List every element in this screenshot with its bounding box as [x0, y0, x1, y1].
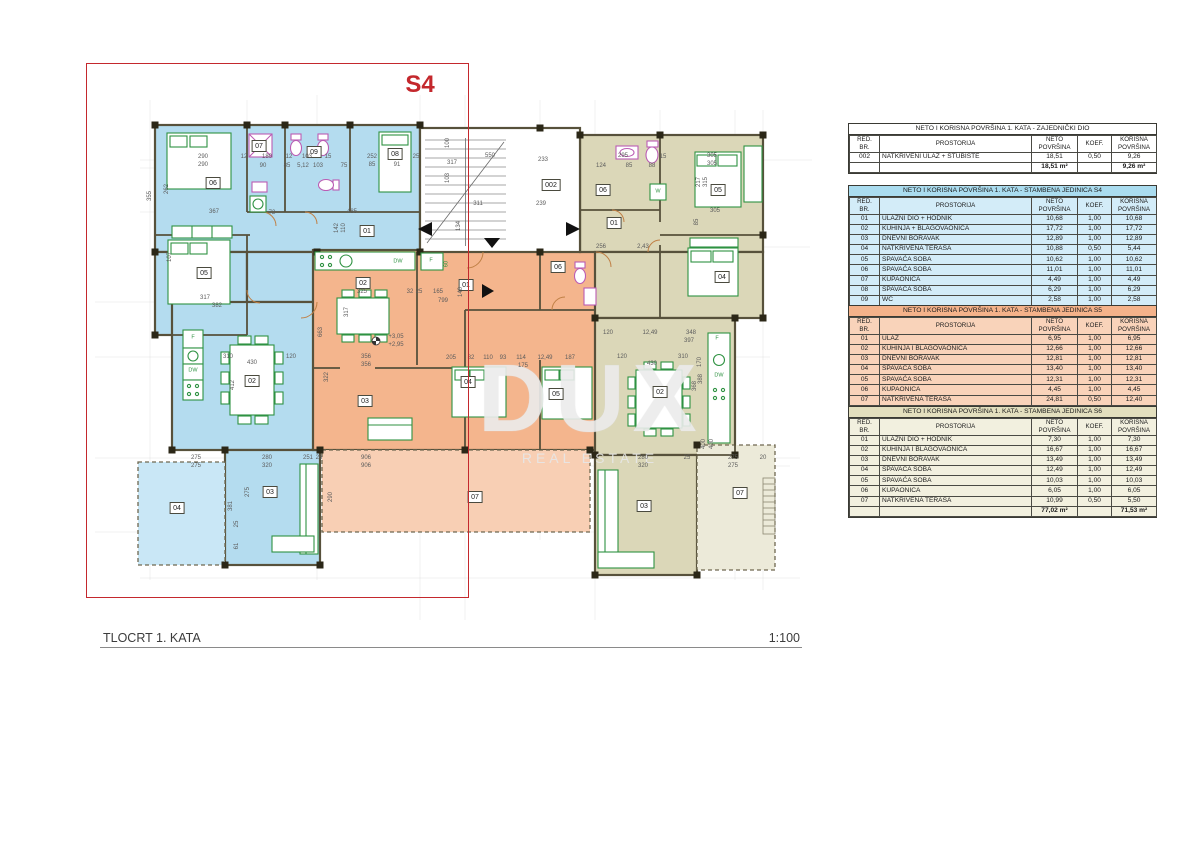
cell: 1,00: [1078, 285, 1112, 295]
table-row: 04SPAVAĆA SOBA13,401,0013,40: [850, 365, 1157, 375]
cell: 12,49: [1112, 466, 1157, 476]
cell: 9,26: [1112, 152, 1157, 162]
table-row: 03DNEVNI BORAVAK12,891,0012,89: [850, 234, 1157, 244]
column-header: PROSTORIJA: [880, 419, 1032, 436]
cell: 6,29: [1032, 285, 1078, 295]
area-table-s6: NETO I KORISNA POVRŠINA 1. KATA - STAMBE…: [848, 406, 1157, 518]
cell: 0,50: [1078, 496, 1112, 506]
cell: 1,00: [1078, 455, 1112, 465]
cell: 11,01: [1032, 265, 1078, 275]
cell: 13,40: [1112, 365, 1157, 375]
cell: 03: [850, 455, 880, 465]
cell: 10,68: [1112, 214, 1157, 224]
table-row: 06KUPAONICA6,051,006,05: [850, 486, 1157, 496]
cell: 07: [850, 496, 880, 506]
drawing-sheet: DUX REAL ESTATE 060709080501020304020106…: [0, 0, 1200, 848]
header-row: RED. BR.PROSTORIJANETO POVRŠINAKOEF.KORI…: [850, 198, 1157, 215]
cell: 0,50: [1078, 395, 1112, 405]
cell: 05: [850, 255, 880, 265]
table-row: 08SPAVAĆA SOBA6,291,006,29: [850, 285, 1157, 295]
area-table-common: NETO I KORISNA POVRŠINA 1. KATA - ZAJEDN…: [848, 123, 1157, 174]
cell: 12,81: [1032, 354, 1078, 364]
cell: 1,00: [1078, 445, 1112, 455]
cell: 002: [850, 152, 880, 162]
cell: 1,00: [1078, 476, 1112, 486]
column-header: KOEF.: [1078, 198, 1112, 215]
cell: 06: [850, 265, 880, 275]
area-table-grid: RED. BR.PROSTORIJANETO POVRŠINAKOEF.KORI…: [849, 135, 1157, 173]
table-row: 05SPAVAĆA SOBA10,621,0010,62: [850, 255, 1157, 265]
cell: ULAZ: [880, 334, 1032, 344]
table-row: 06KUPAONICA4,451,004,45: [850, 385, 1157, 395]
cell: 10,03: [1032, 476, 1078, 486]
cell: 24,81: [1032, 395, 1078, 405]
cell: 6,29: [1112, 285, 1157, 295]
table-row: 002NATKRIVENI ULAZ + STUBIŠTE18,510,509,…: [850, 152, 1157, 162]
table-row: 03DNEVNI BORAVAK12,811,0012,81: [850, 354, 1157, 364]
cell: 13,49: [1112, 455, 1157, 465]
total-row: 77,02 m²71,53 m²: [850, 506, 1157, 516]
column-header: NETO POVRŠINA: [1032, 419, 1078, 436]
column-header: PROSTORIJA: [880, 318, 1032, 335]
table-row: 07NATKRIVENA TERASA24,810,5012,40: [850, 395, 1157, 405]
cell: 02: [850, 445, 880, 455]
cell: 02: [850, 344, 880, 354]
cell: 10,68: [1032, 214, 1078, 224]
cell: 10,99: [1032, 496, 1078, 506]
column-header: KOEF.: [1078, 318, 1112, 335]
cell: 1,00: [1078, 466, 1112, 476]
cell: 12,89: [1112, 234, 1157, 244]
cell: 01: [850, 214, 880, 224]
cell: 4,45: [1032, 385, 1078, 395]
table-row: 07NATKRIVENA TERASA10,990,505,50: [850, 496, 1157, 506]
column-header: RED. BR.: [850, 318, 880, 335]
cell: 02: [850, 224, 880, 234]
cell: 03: [850, 234, 880, 244]
header-row: RED. BR.PROSTORIJANETO POVRŠINAKOEF.KORI…: [850, 136, 1157, 153]
cell: 07: [850, 275, 880, 285]
cell: 03: [850, 354, 880, 364]
area-table-grid: RED. BR.PROSTORIJANETO POVRŠINAKOEF.KORI…: [849, 317, 1157, 416]
table-row: 01ULAZNI DIO + HODNIK10,681,0010,68: [850, 214, 1157, 224]
cell: KUHINJA + BLAGOVAONICA: [880, 224, 1032, 234]
cell: DNEVNI BORAVAK: [880, 455, 1032, 465]
cell: 6,95: [1112, 334, 1157, 344]
cell: 12,66: [1112, 344, 1157, 354]
cell: 1,00: [1078, 265, 1112, 275]
area-table-grid: RED. BR.PROSTORIJANETO POVRŠINAKOEF.KORI…: [849, 197, 1157, 316]
cell: 07: [850, 395, 880, 405]
table-title: NETO I KORISNA POVRŠINA 1. KATA - STAMBE…: [849, 186, 1156, 197]
column-header: RED. BR.: [850, 136, 880, 153]
table-row: 06SPAVAĆA SOBA11,011,0011,01: [850, 265, 1157, 275]
column-header: NETO POVRŠINA: [1032, 318, 1078, 335]
cell: SPAVAĆA SOBA: [880, 375, 1032, 385]
cell: 1,00: [1078, 486, 1112, 496]
cell: 1,00: [1078, 435, 1112, 445]
table-row: 04NATKRIVENA TERASA10,880,505,44: [850, 245, 1157, 255]
cell: SPAVAĆA SOBA: [880, 265, 1032, 275]
area-table-grid: RED. BR.PROSTORIJANETO POVRŠINAKOEF.KORI…: [849, 418, 1157, 517]
cell: NATKRIVENA TERASA: [880, 395, 1032, 405]
cell: 4,49: [1112, 275, 1157, 285]
cell: 1,00: [1078, 234, 1112, 244]
total-cell: [880, 506, 1032, 516]
cell: 06: [850, 385, 880, 395]
cell: 5,50: [1112, 496, 1157, 506]
s4-highlight-label: S4: [396, 71, 444, 99]
area-table-s5: NETO I KORISNA POVRŠINA 1. KATA - STAMBE…: [848, 305, 1157, 417]
cell: 12,40: [1112, 395, 1157, 405]
cell: 01: [850, 435, 880, 445]
cell: 4,45: [1112, 385, 1157, 395]
total-cell: 9,26 m²: [1112, 162, 1157, 172]
cell: 17,72: [1112, 224, 1157, 234]
table-row: 05SPAVAĆA SOBA10,031,0010,03: [850, 476, 1157, 486]
cell: 1,00: [1078, 385, 1112, 395]
cell: KUPAONICA: [880, 275, 1032, 285]
table-row: 03DNEVNI BORAVAK13,491,0013,49: [850, 455, 1157, 465]
header-row: RED. BR.PROSTORIJANETO POVRŠINAKOEF.KORI…: [850, 419, 1157, 436]
cell: NATKRIVENI ULAZ + STUBIŠTE: [880, 152, 1032, 162]
cell: 12,66: [1032, 344, 1078, 354]
table-title: NETO I KORISNA POVRŠINA 1. KATA - STAMBE…: [849, 306, 1156, 317]
cell: 6,05: [1032, 486, 1078, 496]
column-header: NETO POVRŠINA: [1032, 198, 1078, 215]
cell: 11,01: [1112, 265, 1157, 275]
total-cell: [850, 162, 880, 172]
column-header: KORISNA POVRŠINA: [1112, 419, 1157, 436]
cell: 05: [850, 476, 880, 486]
cell: KUPAONICA: [880, 385, 1032, 395]
cell: SPAVAĆA SOBA: [880, 255, 1032, 265]
total-cell: [850, 506, 880, 516]
cell: ULAZNI DIO + HODNIK: [880, 214, 1032, 224]
total-cell: 71,53 m²: [1112, 506, 1157, 516]
cell: 1,00: [1078, 375, 1112, 385]
column-header: KOEF.: [1078, 419, 1112, 436]
table-row: 04SPAVAĆA SOBA12,491,0012,49: [850, 466, 1157, 476]
cell: 1,00: [1078, 214, 1112, 224]
cell: 06: [850, 486, 880, 496]
table-row: 05SPAVAĆA SOBA12,311,0012,31: [850, 375, 1157, 385]
column-header: PROSTORIJA: [880, 136, 1032, 153]
cell: 04: [850, 466, 880, 476]
cell: KUHINJA I BLAGOVAONICA: [880, 344, 1032, 354]
cell: 13,49: [1032, 455, 1078, 465]
cell: 18,51: [1032, 152, 1078, 162]
cell: 10,62: [1112, 255, 1157, 265]
cell: 12,49: [1032, 466, 1078, 476]
table-title: NETO I KORISNA POVRŠINA 1. KATA - STAMBE…: [849, 407, 1156, 418]
total-cell: 18,51 m²: [1032, 162, 1078, 172]
cell: 7,30: [1112, 435, 1157, 445]
cell: 5,44: [1112, 245, 1157, 255]
cell: 05: [850, 375, 880, 385]
cell: 1,00: [1078, 224, 1112, 234]
cell: 7,30: [1032, 435, 1078, 445]
table-row: 02KUHINJA I BLAGOVAONICA12,661,0012,66: [850, 344, 1157, 354]
table-row: 07KUPAONICA4,491,004,49: [850, 275, 1157, 285]
cell: 01: [850, 334, 880, 344]
cell: 4,49: [1032, 275, 1078, 285]
cell: 6,05: [1112, 486, 1157, 496]
cell: 1,00: [1078, 334, 1112, 344]
cell: 10,03: [1112, 476, 1157, 486]
column-header: RED. BR.: [850, 198, 880, 215]
cell: SPAVAĆA SOBA: [880, 466, 1032, 476]
cell: 0,50: [1078, 152, 1112, 162]
cell: 17,72: [1032, 224, 1078, 234]
cell: 10,88: [1032, 245, 1078, 255]
cell: KUPAONICA: [880, 486, 1032, 496]
cell: DNEVNI BORAVAK: [880, 354, 1032, 364]
table-row: 01ULAZNI DIO + HODNIK7,301,007,30: [850, 435, 1157, 445]
cell: 12,31: [1032, 375, 1078, 385]
cell: 1,00: [1078, 344, 1112, 354]
cell: DNEVNI BORAVAK: [880, 234, 1032, 244]
cell: 6,95: [1032, 334, 1078, 344]
table-row: 02KUHINJA + BLAGOVAONICA17,721,0017,72: [850, 224, 1157, 234]
cell: 0,50: [1078, 245, 1112, 255]
cell: 12,31: [1112, 375, 1157, 385]
column-header: KORISNA POVRŠINA: [1112, 318, 1157, 335]
cell: SPAVAĆA SOBA: [880, 476, 1032, 486]
table-row: 02KUHINJA I BLAGOVAONICA16,671,0016,67: [850, 445, 1157, 455]
column-header: KORISNA POVRŠINA: [1112, 198, 1157, 215]
column-header: KORISNA POVRŠINA: [1112, 136, 1157, 153]
cell: 08: [850, 285, 880, 295]
total-cell: [880, 162, 1032, 172]
area-tables: NETO I KORISNA POVRŠINA 1. KATA - ZAJEDN…: [0, 0, 1200, 848]
total-cell: [1078, 506, 1112, 516]
cell: 1,00: [1078, 275, 1112, 285]
cell: SPAVAĆA SOBA: [880, 285, 1032, 295]
column-header: KOEF.: [1078, 136, 1112, 153]
cell: NATKRIVENA TERASA: [880, 496, 1032, 506]
total-row: 18,51 m²9,26 m²: [850, 162, 1157, 172]
cell: 12,81: [1112, 354, 1157, 364]
table-title: NETO I KORISNA POVRŠINA 1. KATA - ZAJEDN…: [849, 124, 1156, 135]
cell: 1,00: [1078, 354, 1112, 364]
column-header: NETO POVRŠINA: [1032, 136, 1078, 153]
cell: 12,89: [1032, 234, 1078, 244]
cell: NATKRIVENA TERASA: [880, 245, 1032, 255]
area-table-s4: NETO I KORISNA POVRŠINA 1. KATA - STAMBE…: [848, 185, 1157, 317]
cell: KUHINJA I BLAGOVAONICA: [880, 445, 1032, 455]
total-cell: 77,02 m²: [1032, 506, 1078, 516]
cell: 10,62: [1032, 255, 1078, 265]
cell: 13,40: [1032, 365, 1078, 375]
cell: 1,00: [1078, 365, 1112, 375]
column-header: PROSTORIJA: [880, 198, 1032, 215]
total-cell: [1078, 162, 1112, 172]
cell: 04: [850, 365, 880, 375]
cell: 16,67: [1112, 445, 1157, 455]
cell: 1,00: [1078, 255, 1112, 265]
table-row: 01ULAZ6,951,006,95: [850, 334, 1157, 344]
header-row: RED. BR.PROSTORIJANETO POVRŠINAKOEF.KORI…: [850, 318, 1157, 335]
cell: 16,67: [1032, 445, 1078, 455]
cell: 04: [850, 245, 880, 255]
column-header: RED. BR.: [850, 419, 880, 436]
cell: ULAZNI DIO + HODNIK: [880, 435, 1032, 445]
cell: SPAVAĆA SOBA: [880, 365, 1032, 375]
